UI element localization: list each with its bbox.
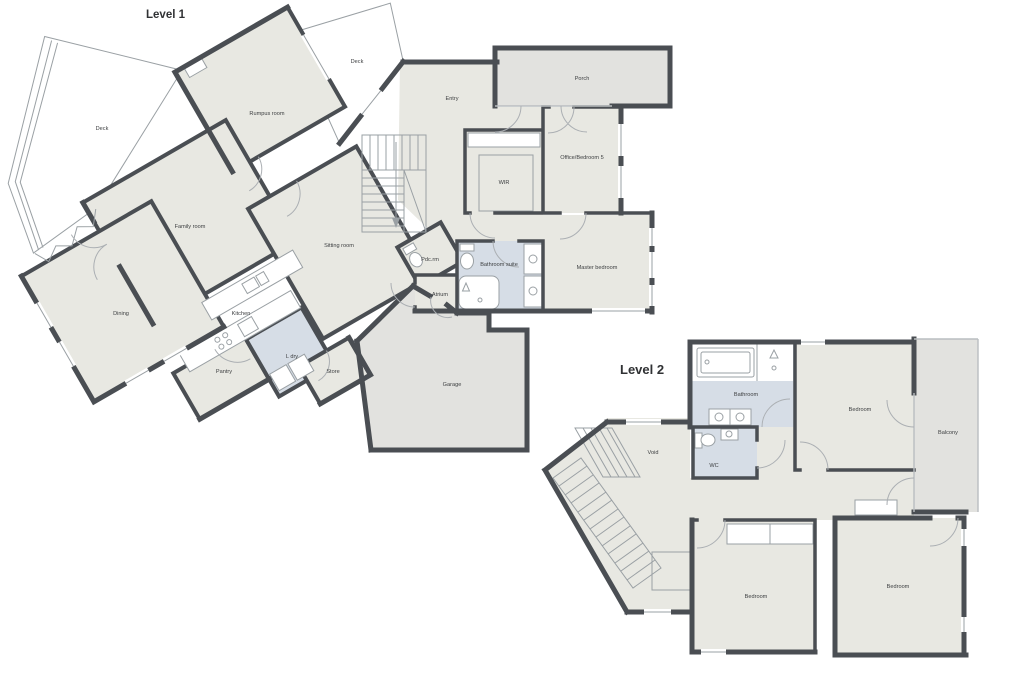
room-label-rumpus: Rumpus room — [249, 111, 284, 117]
room-label-porch: Porch — [575, 76, 590, 82]
room-label-balcony: Balcony — [938, 430, 958, 436]
room-label-bedroom-top: Bedroom — [849, 407, 872, 413]
room-label-wc: WC — [709, 463, 718, 469]
room-label-wir: WIR — [499, 180, 510, 186]
room-label-void: Void — [648, 450, 659, 456]
room-label-deck-left: Deck — [96, 126, 109, 132]
floorplan-page: Level 1 Deck Deck Rumpus room Family roo… — [0, 0, 1024, 683]
toilet-icon — [461, 253, 474, 269]
room-label-powder: Pdc.rm — [421, 257, 439, 263]
room-label-bedroom-right: Bedroom — [887, 584, 910, 590]
vanity-icon — [730, 409, 751, 425]
level2-plan: Level 2 Bathroom Bedroom Balcony Void WC… — [545, 339, 978, 655]
wir-shelf-icon — [468, 133, 540, 147]
room-label-sitting: Sitting room — [324, 243, 354, 249]
room-balcony — [914, 339, 978, 512]
room-label-master: Master bedroom — [577, 265, 618, 271]
room-bedroom-top — [795, 342, 914, 470]
room-label-office: Office/Bedroom 5 — [560, 155, 603, 161]
toilet-icon — [701, 434, 715, 446]
vanity-icon — [709, 409, 730, 425]
room-label-bath-suite: Bathroom suite — [480, 262, 518, 268]
room-label-family: Family room — [175, 224, 206, 230]
vanity-icon — [524, 244, 543, 274]
shower-icon — [459, 276, 499, 309]
room-label-dining: Dining — [113, 311, 129, 317]
level2-title: Level 2 — [620, 362, 664, 377]
level1-plan: Level 1 Deck Deck Rumpus room Family roo… — [0, 0, 670, 501]
floorplan-canvas: Level 1 Deck Deck Rumpus room Family roo… — [0, 0, 1024, 683]
room-label-entry: Entry — [445, 96, 458, 102]
room-label-pantry: Pantry — [216, 369, 232, 375]
room-label-deck-top: Deck — [351, 59, 364, 65]
room-label-bedroom-left: Bedroom — [745, 594, 768, 600]
level1-title: Level 1 — [146, 9, 186, 21]
room-master — [543, 215, 652, 312]
room-label-garage: Garage — [443, 382, 462, 388]
room-label-kitchen: Kitchen — [232, 311, 251, 317]
toilet-icon — [460, 244, 474, 251]
room-label-bathroom-l2: Bathroom — [734, 392, 759, 398]
room-label-laundry: L dry — [286, 354, 298, 360]
robe-icon — [855, 500, 897, 515]
room-label-atrium: Atrium — [432, 292, 449, 298]
room-label-store: Store — [326, 369, 339, 375]
vanity-icon — [524, 276, 543, 307]
